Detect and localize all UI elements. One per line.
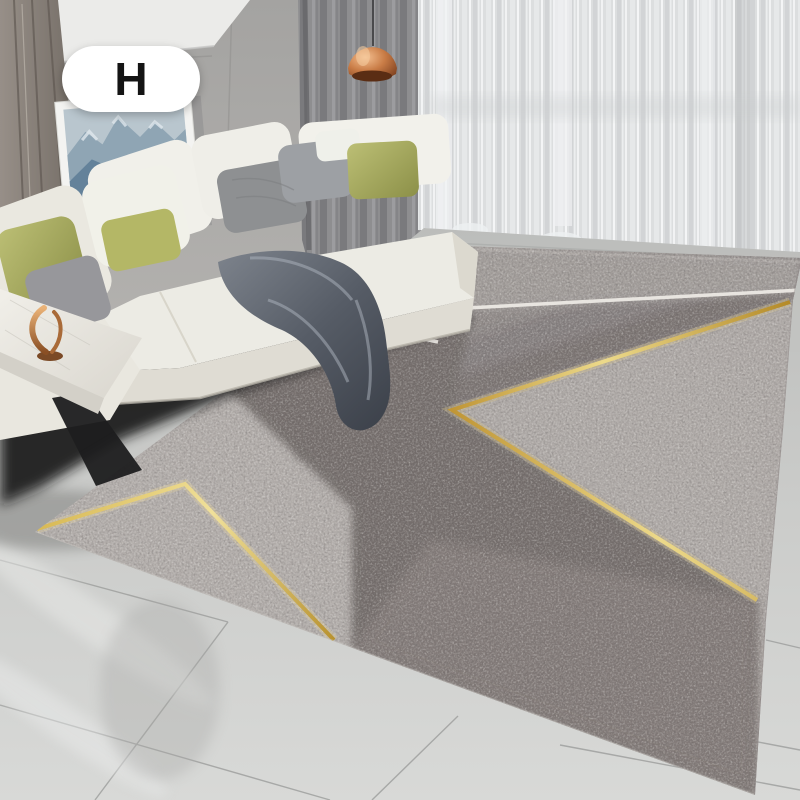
variant-badge: H	[62, 46, 200, 112]
product-photo: H	[0, 0, 800, 800]
variant-badge-label: H	[114, 56, 147, 102]
sheer-curtain	[418, 0, 800, 268]
pillow-olive	[347, 140, 420, 200]
living-room-scene	[0, 0, 800, 800]
